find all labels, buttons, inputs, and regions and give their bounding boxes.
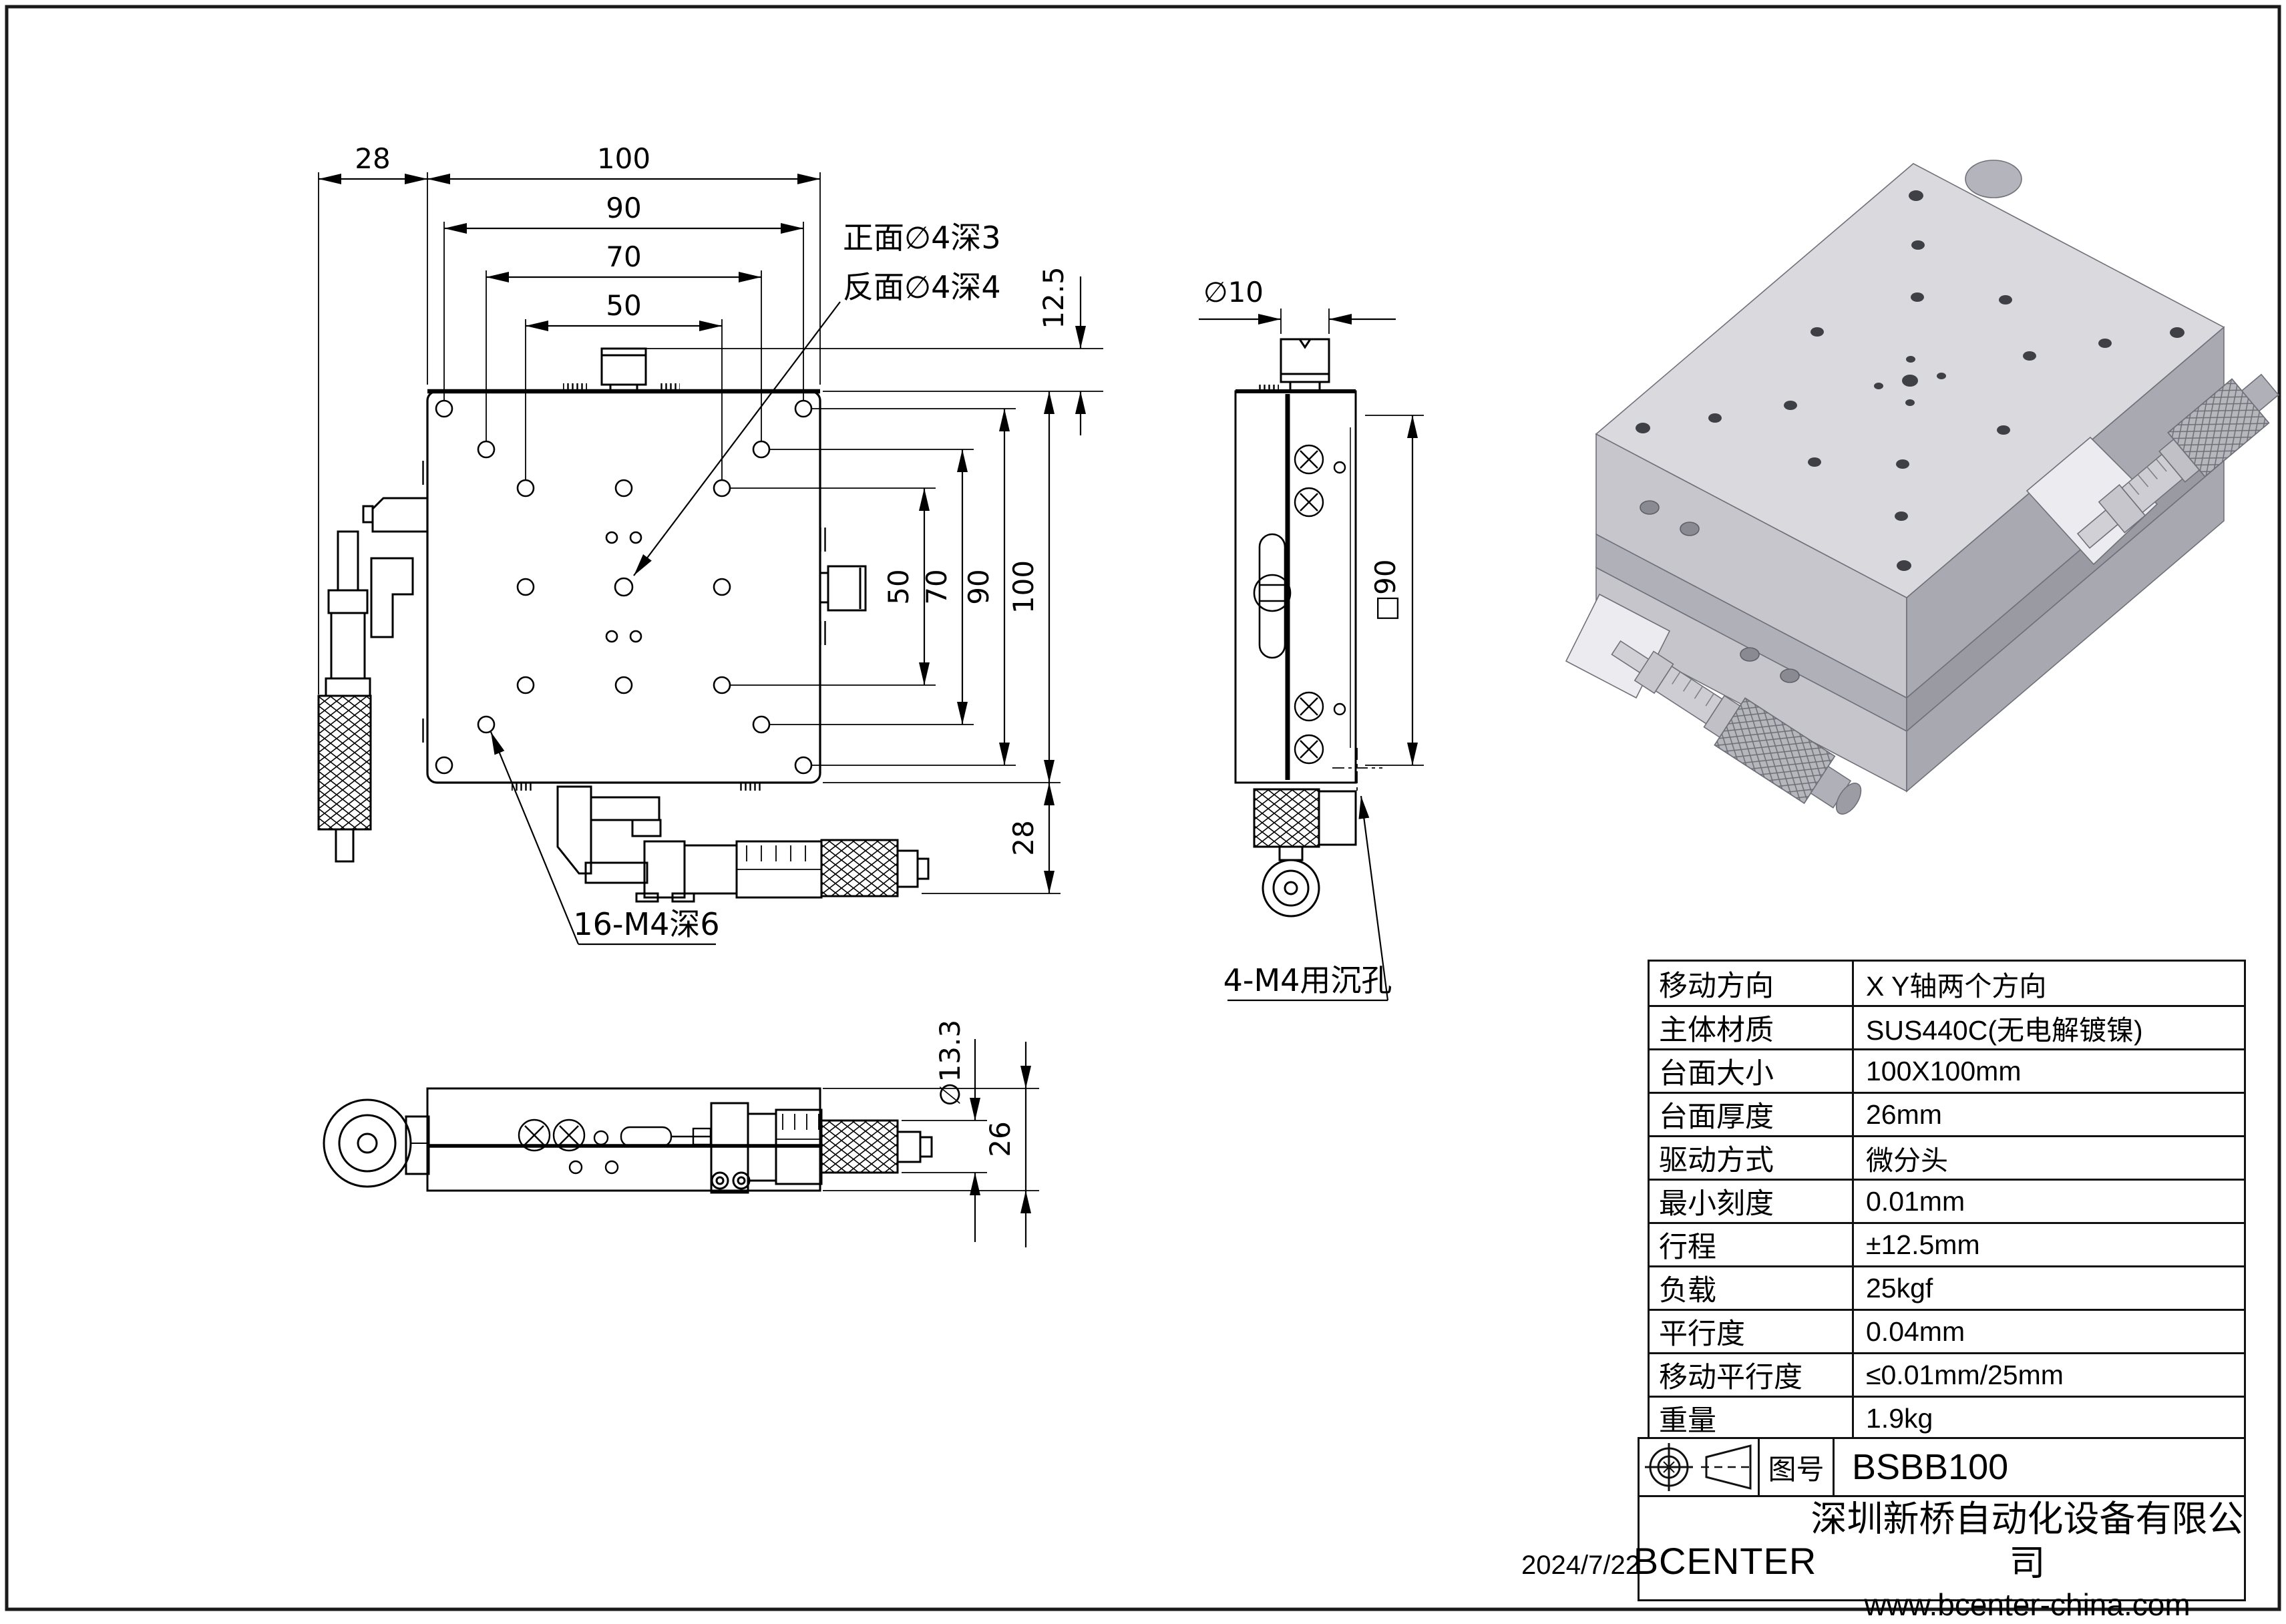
table-row: 移动平行度 ≤0.01mm/25mm [1650,1352,2244,1396]
dim-dia13-3: ∅13.3 [934,1020,966,1106]
spec-value: 25kgf [1854,1267,2244,1309]
dim-50-top: 50 [606,289,641,322]
dim-90-top: 90 [606,192,641,224]
title-block-row-figure: 图号 BSBB100 [1640,1439,2244,1495]
bottom-view: ∅13.3 26 [324,1020,1039,1247]
dim-12-5: 12.5 [1037,266,1070,329]
right-adjustment-knob [820,566,866,610]
side-hole-centerlines [1332,748,1382,791]
spec-value: 0.04mm [1854,1311,2244,1352]
spec-label: 平行度 [1650,1311,1854,1352]
table-row: 平行度 0.04mm [1650,1309,2244,1352]
drawing-sheet: { "sheet": { "date": "2024/7/22" }, "col… [0,0,2286,1616]
bottom-view-micrometer [711,1103,932,1193]
drawing-date: 2024/7/22 [1521,1551,1640,1581]
title-block: 图号 BSBB100 BCENTER 深圳新桥自动化设备有限公司 www.bce… [1638,1437,2246,1601]
spec-label: 负载 [1650,1267,1854,1309]
side-view-micrometer [1254,789,1356,916]
spec-value: 微分头 [1854,1137,2244,1179]
leader-lines [491,302,840,944]
spec-label: 重量 [1650,1398,1854,1439]
isometric-view [1566,160,2286,827]
dim-100-top: 100 [597,142,650,175]
dim-70-right: 70 [920,569,953,604]
spec-value: SUS440C(无电解镀镍) [1854,1007,2244,1048]
spec-label: 台面厚度 [1650,1094,1854,1135]
company-website: www.bcenter-china.com [1811,1585,2244,1624]
dim-70-top: 70 [606,240,641,273]
table-row: 行程 ±12.5mm [1650,1222,2244,1265]
spec-label: 行程 [1650,1224,1854,1265]
front-view: 28 100 90 70 50 12.5 50 70 90 100 28 正面∅… [319,142,1103,944]
spec-label: 最小刻度 [1650,1181,1854,1222]
serration-marks [421,383,827,791]
dim-28-bottom: 28 [1007,820,1040,855]
title-block-row-company: BCENTER 深圳新桥自动化设备有限公司 www.bcenter-china.… [1640,1495,2244,1624]
dim-100-right: 100 [1007,560,1040,614]
spec-value: 1.9kg [1854,1398,2244,1439]
table-row: 最小刻度 0.01mm [1650,1179,2244,1222]
dim-28-left: 28 [355,142,390,175]
dim-sq90: □90 [1369,559,1402,621]
callout-front-hole: 正面∅4深3 [843,220,1001,256]
bottom-view-end-cap [324,1100,429,1187]
drawing-number-label: 图号 [1760,1439,1835,1495]
projection-symbols [1640,1439,1760,1495]
table-row: 主体材质 SUS440C(无电解镀镍) [1650,1005,2244,1048]
brand-name: BCENTER [1640,1497,1811,1624]
label-4-m4: 4-M4用沉孔 [1223,962,1392,998]
table-row: 驱动方式 微分头 [1650,1135,2244,1179]
spec-value: ≤0.01mm/25mm [1854,1354,2244,1396]
table-row: 负载 25kgf [1650,1265,2244,1309]
side-view-screws [1295,445,1345,763]
top-adjustment-knob [602,349,646,391]
company-cell: 深圳新桥自动化设备有限公司 www.bcenter-china.com [1811,1497,2244,1624]
table-row: 台面厚度 26mm [1650,1092,2244,1135]
spec-label: 主体材质 [1650,1007,1854,1048]
dim-dia10: ∅10 [1203,276,1264,309]
company-name: 深圳新桥自动化设备有限公司 [1811,1497,2244,1585]
label-16-m4: 16-M4深6 [573,906,719,942]
spec-table: 移动方向 X Y轴两个方向 主体材质 SUS440C(无电解镀镍) 台面大小 1… [1648,960,2246,1441]
spec-value: X Y轴两个方向 [1854,962,2244,1005]
spec-value: 0.01mm [1854,1181,2244,1222]
spec-label: 移动方向 [1650,962,1854,1005]
side-view: ∅10 □90 4-M4用沉孔 [1199,276,1424,1000]
left-micrometer [319,498,427,861]
dim-26: 26 [984,1121,1016,1157]
spec-value: ±12.5mm [1854,1224,2244,1265]
dim-90-right: 90 [962,569,995,604]
spec-value: 26mm [1854,1094,2244,1135]
cone-projection-icon [1701,1446,1754,1488]
spec-label: 移动平行度 [1650,1354,1854,1396]
table-row: 移动方向 X Y轴两个方向 [1650,962,2244,1005]
callout-back-hole: 反面∅4深4 [843,269,1001,305]
table-row: 台面大小 100X100mm [1650,1048,2244,1092]
mounting-holes [436,401,811,773]
drawing-number-value: BSBB100 [1835,1439,2244,1495]
spec-value: 100X100mm [1854,1050,2244,1092]
side-view-slot [1254,534,1290,658]
table-row: 重量 1.9kg [1650,1396,2244,1439]
spec-label: 驱动方式 [1650,1137,1854,1179]
spec-label: 台面大小 [1650,1050,1854,1092]
datum-target-icon [1645,1443,1693,1491]
bottom-micrometer [558,787,928,901]
dim-50-right: 50 [882,569,915,604]
side-view-knob [1281,339,1329,391]
